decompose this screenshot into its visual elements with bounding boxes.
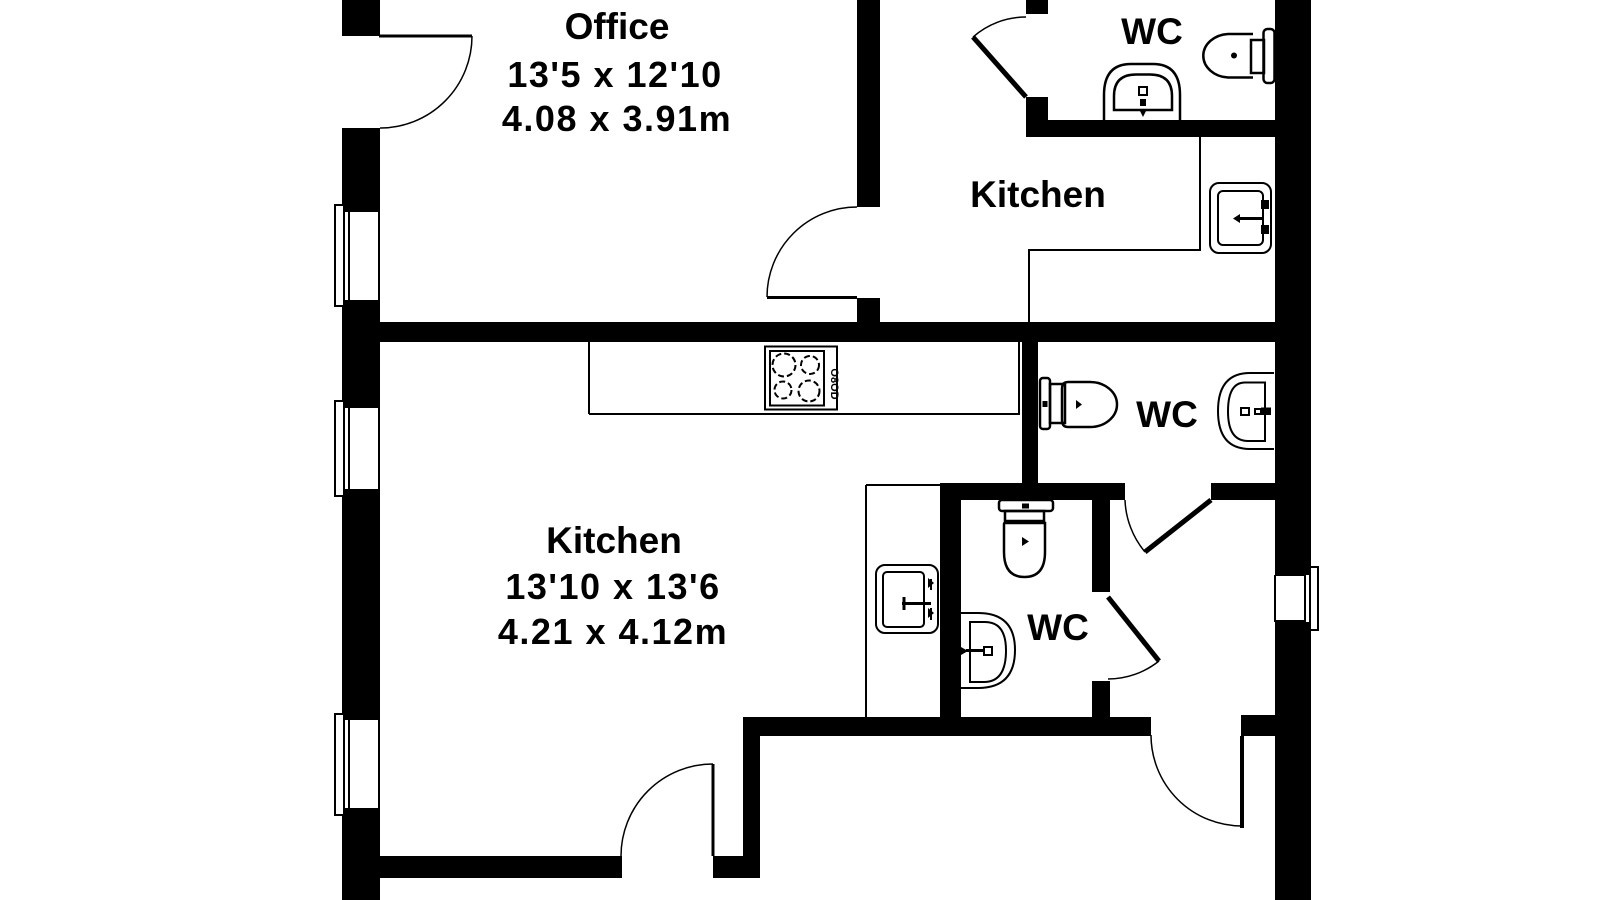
svg-text:WC: WC	[1136, 394, 1198, 435]
svg-text:Kitchen: Kitchen	[970, 174, 1106, 215]
svg-text:WC: WC	[1121, 11, 1183, 52]
svg-text:Kitchen: Kitchen	[546, 520, 682, 561]
svg-text:Office: Office	[565, 6, 670, 47]
svg-text:4.08 x 3.91m: 4.08 x 3.91m	[502, 98, 732, 139]
svg-text:WC: WC	[1027, 607, 1089, 648]
svg-text:13'5 x 12'10: 13'5 x 12'10	[507, 54, 722, 95]
svg-text:13'10 x 13'6: 13'10 x 13'6	[505, 566, 720, 607]
svg-text:O8OD: O8OD	[828, 368, 840, 399]
svg-text:4.21 x 4.12m: 4.21 x 4.12m	[498, 611, 728, 652]
